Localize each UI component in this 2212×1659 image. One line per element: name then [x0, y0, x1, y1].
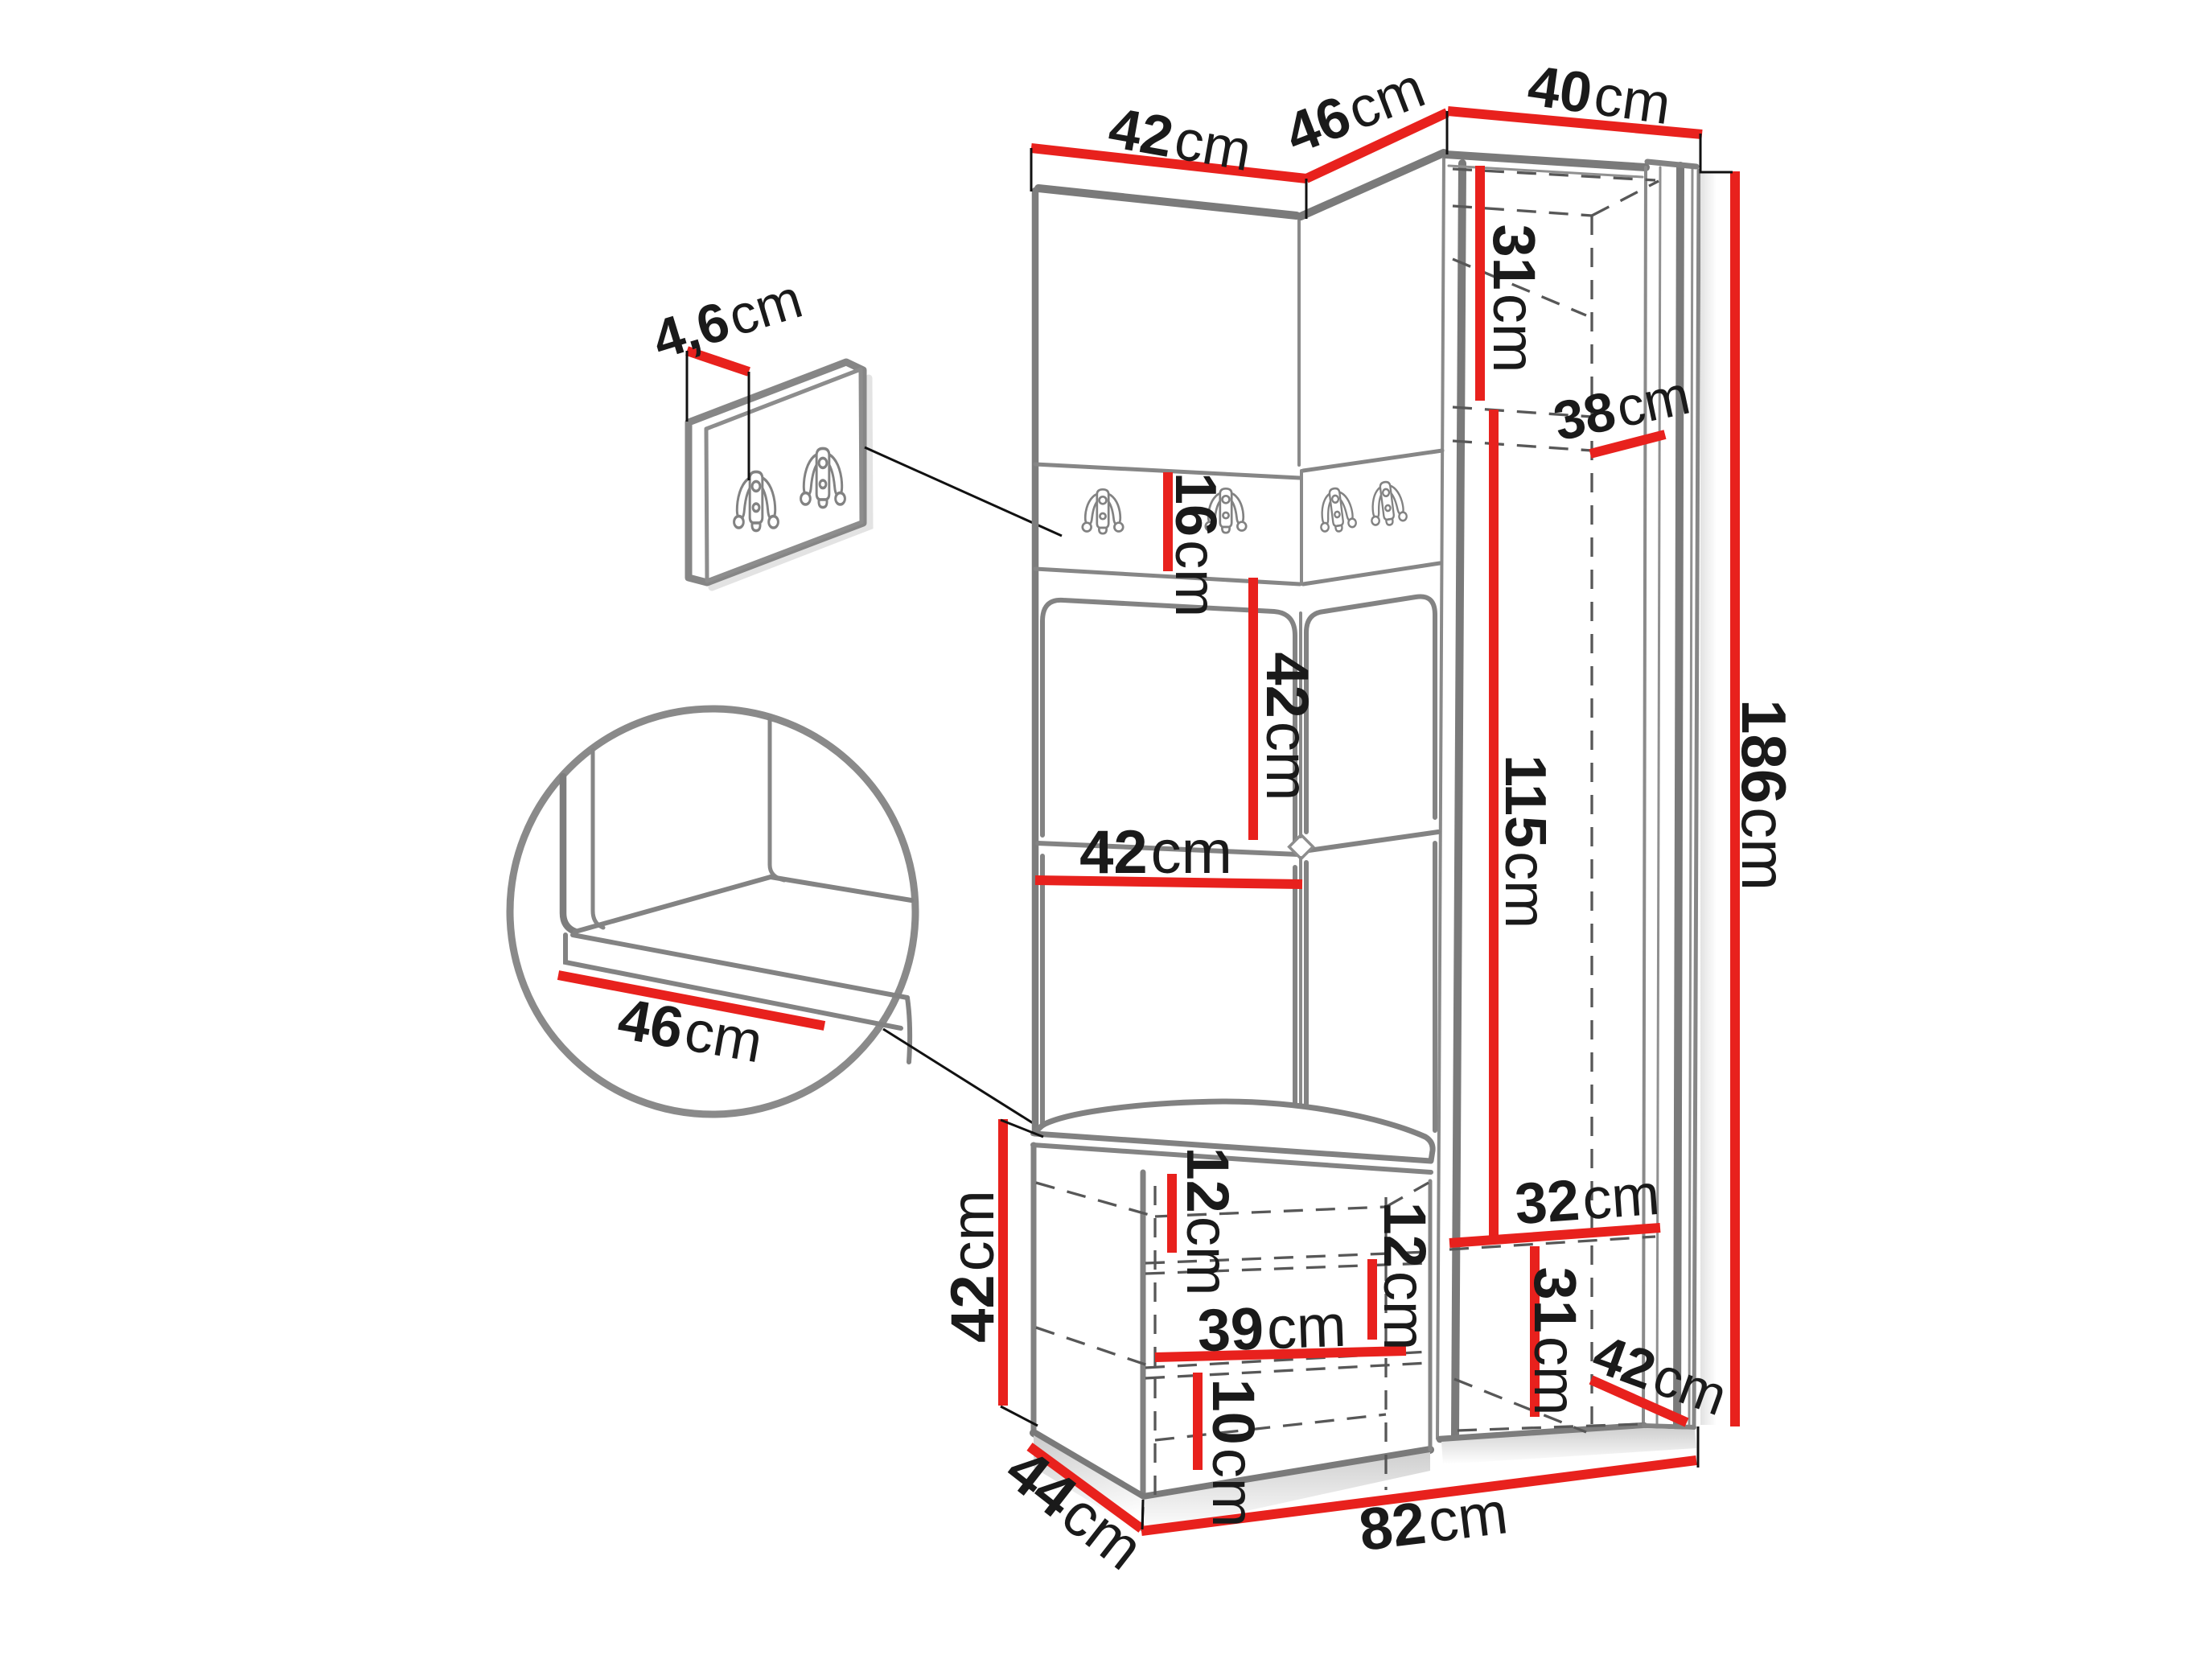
svg-text:31cm: 31cm — [1481, 224, 1548, 373]
svg-text:39cm: 39cm — [1196, 1292, 1347, 1364]
svg-text:42cm: 42cm — [939, 1190, 1007, 1343]
svg-text:10cm: 10cm — [1200, 1379, 1267, 1528]
svg-text:12cm: 12cm — [1174, 1147, 1241, 1296]
svg-text:16cm: 16cm — [1163, 472, 1227, 617]
svg-text:12cm: 12cm — [1371, 1202, 1438, 1351]
svg-text:31cm: 31cm — [1522, 1267, 1589, 1416]
svg-text:32cm: 32cm — [1513, 1163, 1662, 1237]
svg-text:186cm: 186cm — [1729, 699, 1799, 891]
svg-text:42cm: 42cm — [1254, 652, 1321, 801]
svg-text:115cm: 115cm — [1493, 755, 1557, 928]
svg-text:42cm: 42cm — [1079, 818, 1232, 887]
